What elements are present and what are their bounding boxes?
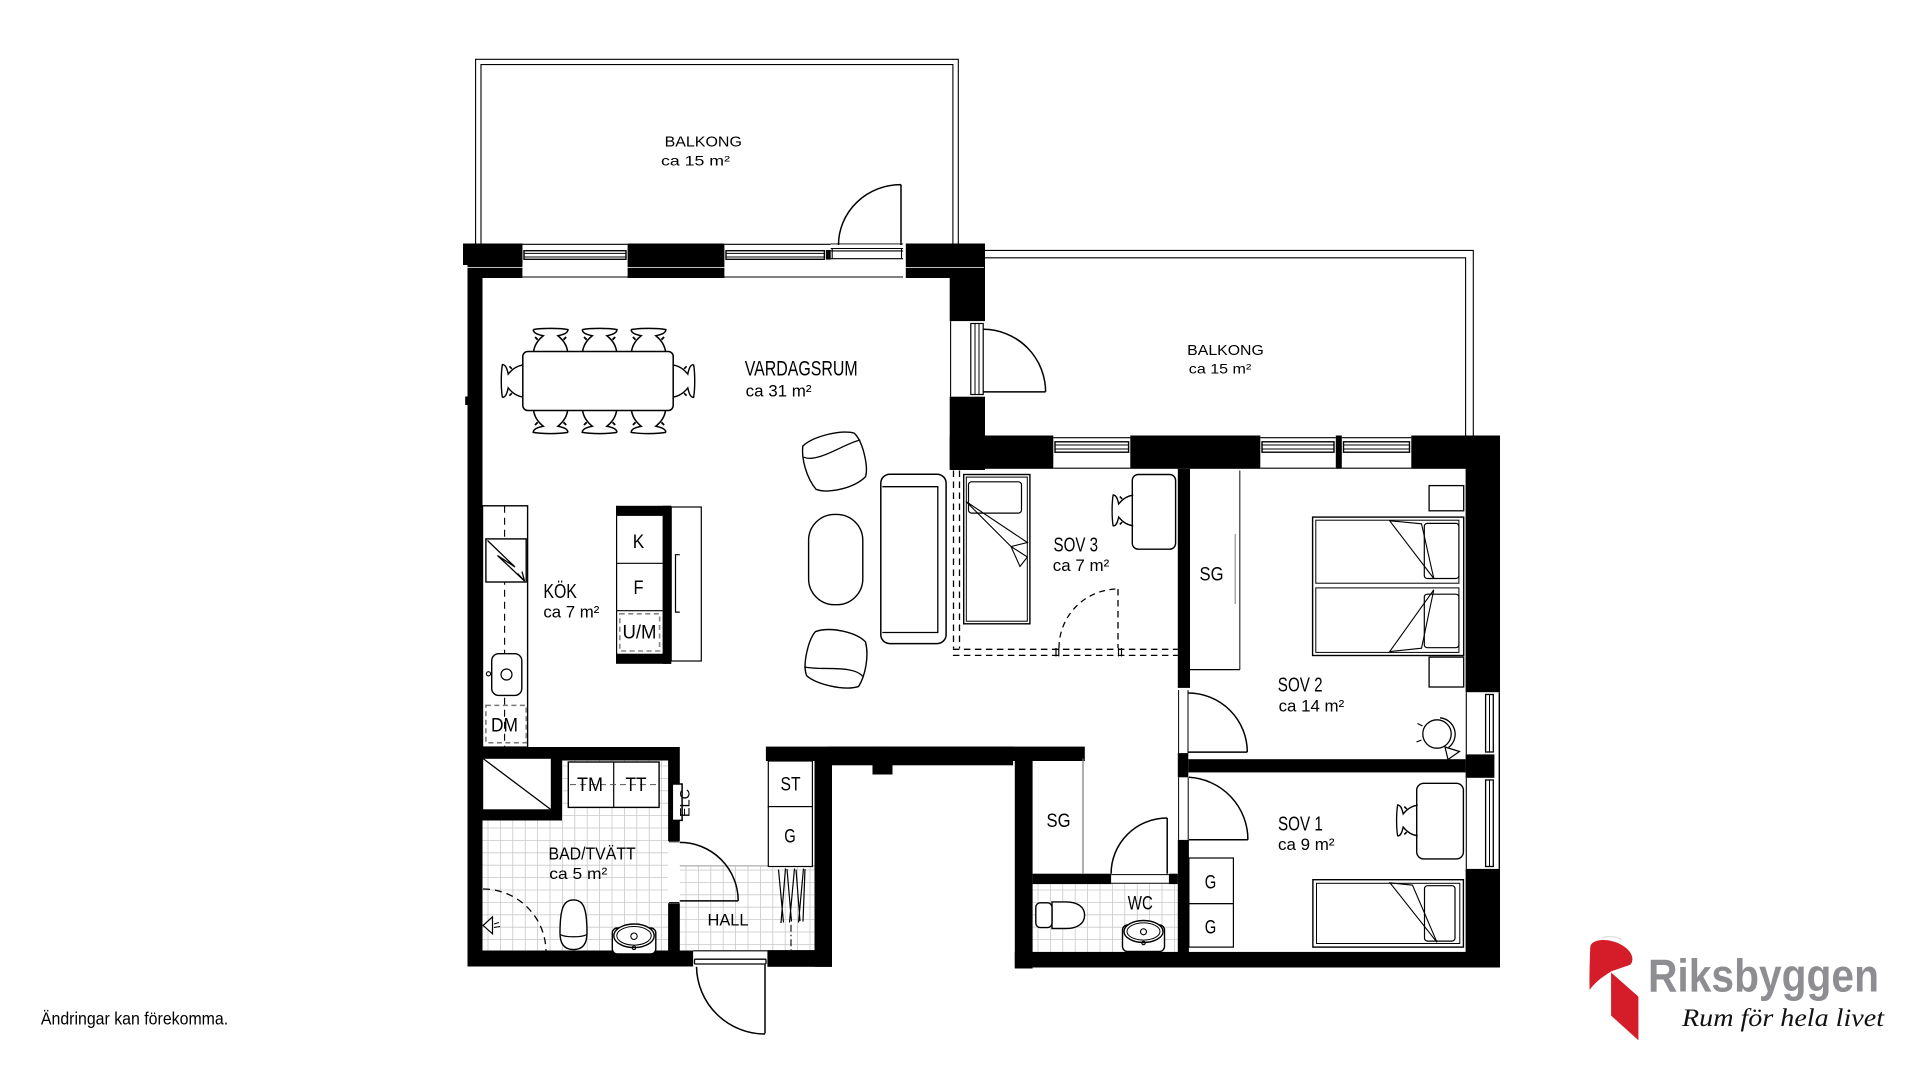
svg-text:ST: ST (781, 775, 801, 796)
svg-text:BALKONG: BALKONG (665, 134, 742, 151)
svg-text:G: G (784, 827, 796, 848)
svg-text:Ändringar kan förekomma.: Ändringar kan förekomma. (41, 1009, 228, 1029)
svg-text:WC: WC (1128, 893, 1153, 915)
svg-text:G: G (1205, 873, 1217, 894)
svg-text:Riksbyggen: Riksbyggen (1648, 950, 1879, 1002)
svg-text:SG: SG (1200, 565, 1224, 586)
svg-text:U/M: U/M (623, 623, 657, 644)
svg-text:ca 15 m²: ca 15 m² (1189, 361, 1252, 377)
svg-text:ca 31 m²: ca 31 m² (746, 381, 812, 400)
svg-text:ca 7 m²: ca 7 m² (1053, 556, 1110, 575)
svg-text:KÖK: KÖK (543, 581, 577, 603)
svg-text:HALL: HALL (708, 911, 749, 930)
svg-text:ca 9 m²: ca 9 m² (1278, 835, 1335, 854)
svg-text:SOV 3: SOV 3 (1054, 535, 1099, 557)
svg-text:F: F (634, 578, 644, 599)
svg-text:TM: TM (577, 775, 603, 796)
svg-text:TT: TT (626, 775, 647, 796)
svg-text:K: K (633, 532, 645, 553)
svg-text:SOV 2: SOV 2 (1278, 675, 1323, 697)
svg-text:ca 14 m²: ca 14 m² (1279, 696, 1345, 715)
svg-text:VARDAGSRUM: VARDAGSRUM (745, 358, 858, 381)
svg-text:SOV 1: SOV 1 (1278, 813, 1323, 835)
svg-text:G: G (1205, 917, 1217, 938)
svg-text:ca 5 m²: ca 5 m² (549, 866, 608, 883)
svg-text:BAD/TVÄTT: BAD/TVÄTT (549, 844, 636, 864)
svg-text:Rum för hela livet: Rum för hela livet (1681, 1005, 1885, 1032)
svg-text:ELC: ELC (678, 789, 693, 817)
svg-text:ca 7 m²: ca 7 m² (543, 603, 599, 622)
svg-text:DM: DM (491, 716, 518, 737)
svg-text:ca 15 m²: ca 15 m² (661, 153, 730, 169)
svg-text:BALKONG: BALKONG (1187, 342, 1264, 359)
svg-text:SG: SG (1047, 811, 1071, 832)
